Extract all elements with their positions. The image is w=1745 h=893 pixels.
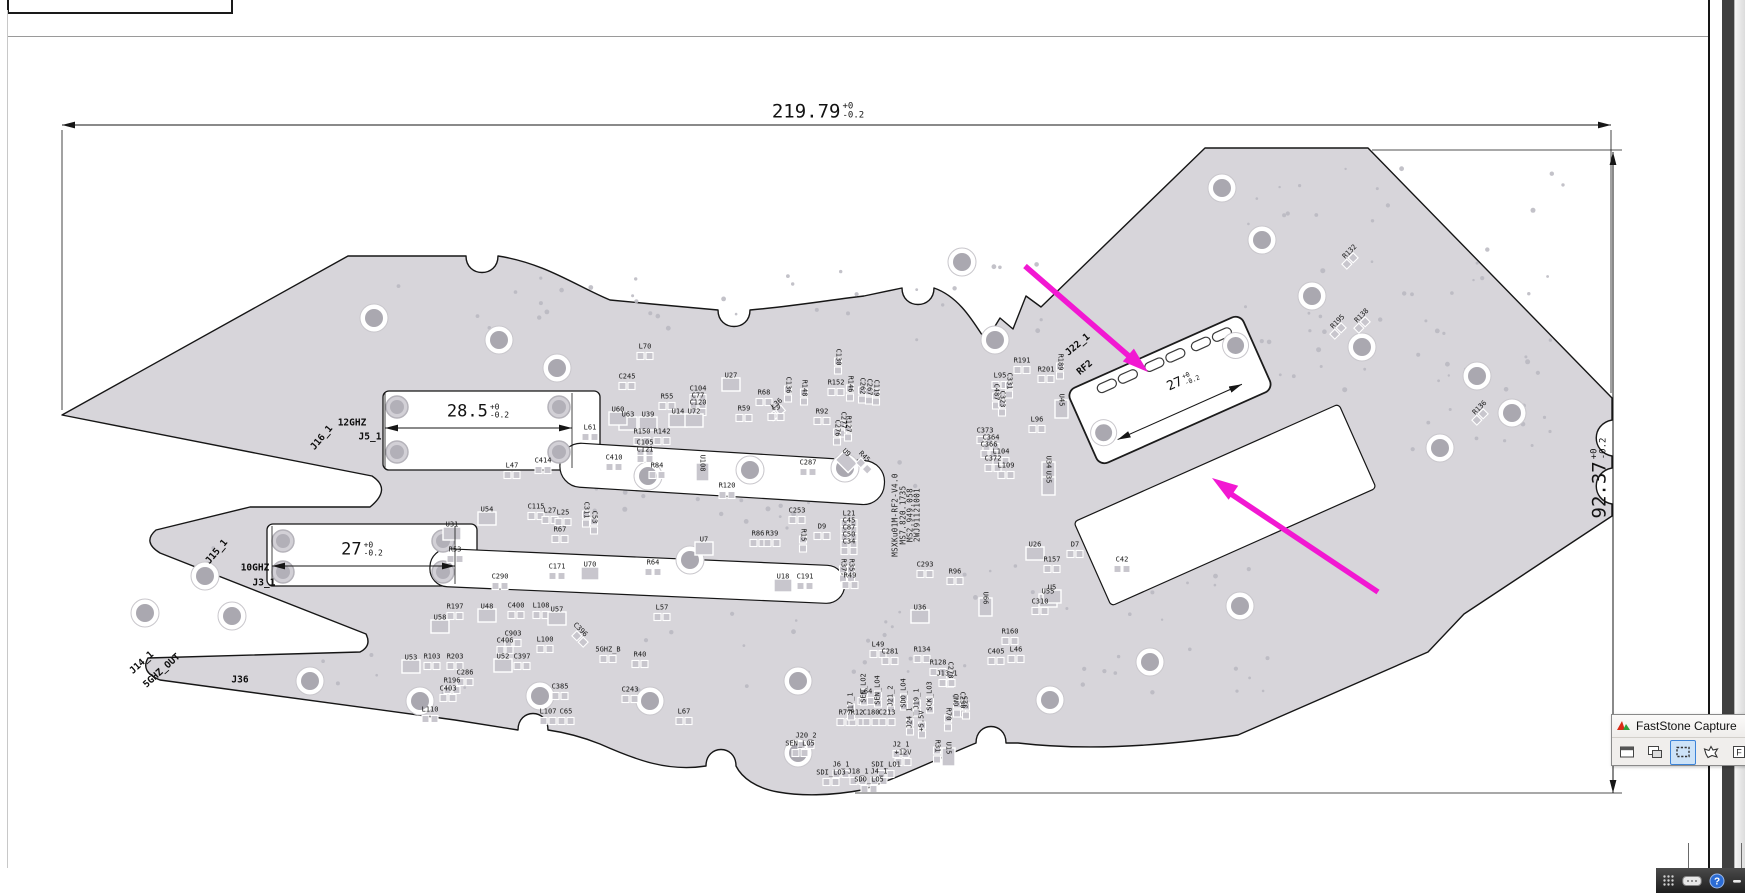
via-dot	[1117, 655, 1120, 658]
via-dot	[735, 313, 738, 316]
via-dot	[1081, 682, 1085, 686]
via-dot	[1248, 677, 1251, 680]
component-label: C406	[497, 638, 514, 645]
dim-value: 27	[341, 542, 361, 559]
faststone-title-bar[interactable]: FastStone Capture	[1612, 715, 1745, 738]
slot-hole-bore	[276, 534, 290, 548]
component-label: R201	[1038, 367, 1055, 374]
via-dot	[1262, 690, 1265, 693]
component-label: R120	[719, 483, 736, 490]
via-dot	[989, 570, 992, 573]
component-label: U58	[434, 615, 447, 622]
via-dot	[952, 286, 956, 290]
component-label: C397	[514, 654, 531, 661]
via-dot	[973, 595, 978, 600]
capture-window-button[interactable]	[1614, 740, 1640, 765]
component-label: R203	[447, 654, 464, 661]
component-label: L107	[540, 709, 557, 716]
dimension-board-height: 92.37 +0-0.2	[1591, 438, 1610, 519]
component-label: U57	[551, 607, 564, 614]
via-dot	[1344, 168, 1346, 170]
component-label: R31	[934, 740, 941, 753]
via-dot	[1150, 690, 1154, 694]
via-dot	[1402, 291, 1406, 295]
via-dot	[998, 266, 1002, 270]
component-label: C191	[797, 574, 814, 581]
via-dot	[1114, 671, 1118, 675]
capture-fullscreen-icon: F	[1731, 745, 1745, 759]
via-dot	[669, 630, 673, 634]
dim-tol-dn: -0.2	[842, 112, 864, 121]
component-label: L46	[1010, 647, 1023, 654]
via-dot	[907, 670, 910, 673]
via-dot	[766, 506, 771, 511]
component-label: SDO_LO5	[854, 777, 884, 784]
via-dot	[791, 629, 796, 634]
component-label: C310	[1032, 599, 1049, 606]
component-pads	[695, 542, 713, 555]
mounting-hole-bore	[223, 607, 241, 625]
component-pads	[443, 527, 461, 540]
via-dot	[1235, 690, 1238, 693]
via-dot	[1561, 183, 1564, 186]
component-label: C120	[690, 400, 707, 407]
component-label: U66	[982, 592, 989, 605]
component-label: L25	[557, 510, 570, 517]
component-label: GND	[954, 694, 961, 707]
component-label: R55	[661, 394, 674, 401]
via-dot	[545, 310, 550, 315]
component-label: C121	[637, 447, 654, 454]
via-dot	[941, 303, 944, 306]
component-label: R68	[758, 390, 771, 397]
via-dot	[743, 644, 746, 647]
via-dot	[897, 460, 902, 465]
component-label: U15	[945, 742, 952, 755]
component-label: J13_1	[936, 671, 957, 678]
slot-hole-bore	[436, 565, 450, 579]
component-label: R35	[848, 559, 855, 572]
capture-freehand-button[interactable]	[1698, 740, 1724, 765]
capture-fullscreen-button[interactable]: F	[1726, 740, 1745, 765]
via-dot	[1449, 408, 1452, 411]
component-label: U52	[497, 654, 510, 661]
via-dot	[1214, 584, 1217, 587]
via-dot	[514, 290, 518, 294]
mounting-hole-bore	[641, 692, 659, 710]
component-label: R197	[447, 604, 464, 611]
via-dot	[1550, 172, 1554, 176]
dim-tol-dn: -0.2	[490, 412, 509, 420]
component-label: SDI_LO3	[816, 770, 846, 777]
slot-hole-bore	[390, 445, 404, 459]
component-label: C281	[882, 649, 899, 656]
via-dot	[1472, 279, 1474, 281]
component-label: U72	[688, 409, 701, 416]
via-dot	[463, 686, 466, 689]
via-dot	[1386, 203, 1390, 207]
via-dot	[1445, 362, 1450, 367]
capture-window-icon	[1619, 745, 1635, 759]
via-dot	[1503, 439, 1506, 442]
minimize-icon[interactable]	[1732, 876, 1742, 886]
via-dot	[1308, 329, 1311, 332]
app-grid-icon[interactable]	[1662, 874, 1675, 887]
via-dot	[1531, 444, 1534, 447]
via-dot	[846, 311, 850, 315]
via-dot	[1410, 292, 1414, 296]
via-dot	[1378, 317, 1382, 321]
via-dot	[992, 264, 997, 269]
via-dot	[1531, 208, 1536, 213]
component-label: L109	[998, 463, 1015, 470]
component-label: C414	[535, 458, 552, 465]
component-label: U35	[1045, 471, 1052, 484]
component-label: R152	[828, 380, 845, 387]
via-dot	[1448, 374, 1450, 376]
component-label: J19_1	[914, 688, 921, 709]
via-dot	[1480, 276, 1484, 280]
via-dot	[1485, 247, 1489, 251]
via-dot	[1342, 387, 1347, 392]
mounting-hole-bore	[1303, 287, 1321, 305]
component-label: C286	[457, 670, 474, 677]
via-dot	[795, 619, 798, 622]
component-label: J2_1	[893, 742, 910, 749]
component-label: C262	[859, 378, 866, 395]
via-dot	[1014, 564, 1018, 568]
component-label: C180	[863, 710, 880, 717]
dim-tol-dn: -0.2	[364, 550, 383, 558]
component-label: R128	[930, 660, 947, 667]
component-label: U5	[1048, 585, 1056, 592]
component-label: 5GHZ_B	[595, 647, 620, 654]
component-label: C400	[508, 603, 525, 610]
component-label: U26	[1029, 542, 1042, 549]
via-dot	[909, 657, 913, 661]
via-dot	[1308, 312, 1311, 315]
component-label: L27	[544, 508, 557, 515]
via-dot	[1536, 371, 1540, 375]
via-dot	[1363, 368, 1366, 371]
mounting-hole-bore	[531, 687, 549, 705]
via-dot	[1286, 211, 1290, 215]
svg-text:F: F	[1736, 748, 1742, 758]
via-dot	[730, 612, 734, 616]
component-label: C403	[440, 686, 457, 693]
component-label: J4_1	[871, 769, 888, 776]
via-dot	[1298, 184, 1301, 187]
component-label: SEN_LO2	[861, 673, 868, 703]
via-dot	[786, 274, 790, 278]
mounting-hole-bore	[1431, 439, 1449, 457]
component-label: C253	[789, 508, 806, 515]
component-label: C267	[866, 379, 873, 396]
component-label: C213	[879, 710, 896, 717]
component-label: SDO_LO4	[901, 678, 908, 708]
dimension-slot-top: 28.5 +0-0.2	[447, 404, 509, 421]
slot-hole-bore	[552, 400, 566, 414]
via-dot	[744, 519, 749, 524]
component-label: U108	[699, 455, 706, 472]
via-dot	[1320, 365, 1323, 368]
component-label: C385	[552, 684, 569, 691]
component-label: R39	[766, 531, 779, 538]
via-dot	[839, 270, 842, 273]
taskbar-fragment[interactable]: ?	[1656, 868, 1745, 893]
component-pads	[685, 414, 703, 427]
mounting-hole-bore	[1041, 691, 1059, 709]
component-label: J17_1	[848, 692, 855, 713]
component-label: L67	[678, 709, 691, 716]
component-pads	[402, 660, 420, 673]
via-dot	[1527, 292, 1530, 295]
port-label: J36	[231, 675, 248, 685]
port-label: J5_1	[359, 432, 382, 442]
via-dot	[1546, 275, 1549, 278]
via-dot	[1278, 186, 1280, 188]
component-label: U36	[914, 605, 927, 612]
component-label: R148	[801, 380, 808, 397]
slot-hole-bore	[390, 400, 404, 414]
capture-object-button[interactable]	[1642, 740, 1668, 765]
via-dot	[696, 497, 700, 501]
component-label: C243	[622, 687, 639, 694]
via-dot	[539, 301, 543, 305]
via-dot	[1161, 619, 1163, 621]
component-label: R96	[949, 569, 962, 576]
mounting-hole-bore	[1141, 653, 1159, 671]
via-dot	[1082, 667, 1086, 671]
component-label: U14	[672, 409, 685, 416]
component-label: C410	[606, 455, 623, 462]
component-pads	[669, 414, 687, 427]
component-label: R134	[914, 647, 931, 654]
via-dot	[891, 625, 894, 628]
component-pads	[1026, 547, 1044, 560]
pcb-drawing	[0, 0, 1745, 893]
via-dot	[1034, 262, 1039, 267]
via-dot	[1314, 213, 1318, 217]
via-dot	[963, 573, 967, 577]
component-label: U27	[725, 373, 738, 380]
component-label: J25	[963, 696, 970, 709]
via-dot	[1504, 387, 1509, 392]
via-dot	[1322, 329, 1327, 334]
component-label: R70	[945, 708, 952, 721]
component-label: R15	[800, 529, 807, 542]
port-label: J3_1	[253, 578, 276, 588]
component-label: L70	[639, 344, 652, 351]
via-dot	[476, 314, 480, 318]
component-label: L100	[537, 637, 554, 644]
component-label: U31	[446, 522, 459, 529]
via-dot	[791, 282, 794, 285]
dimension-slot-bottom: 27 +0-0.2	[341, 542, 383, 559]
via-dot	[1320, 268, 1325, 273]
via-dot	[1186, 582, 1189, 585]
via-dot	[321, 659, 325, 663]
component-label: J18_1	[847, 769, 868, 776]
component-label: U48	[481, 604, 494, 611]
component-pads	[494, 659, 512, 672]
via-dot	[915, 288, 918, 291]
component-label: C287	[800, 460, 817, 467]
component-label: R160	[1002, 629, 1019, 636]
faststone-title: FastStone Capture	[1636, 719, 1737, 733]
capture-freehand-icon	[1703, 745, 1719, 759]
via-dot	[648, 311, 652, 315]
via-dot	[666, 326, 671, 331]
component-pads	[722, 378, 740, 391]
component-label: L110	[422, 707, 439, 714]
component-label: R196	[444, 678, 461, 685]
via-dot	[634, 277, 637, 280]
component-label: R84	[651, 463, 664, 470]
component-label: R64	[647, 560, 660, 567]
via-dot	[1244, 305, 1247, 308]
component-label: U70	[584, 562, 597, 569]
mounting-hole-bore	[490, 331, 508, 349]
help-icon[interactable]: ?	[1709, 873, 1725, 889]
mounting-hole-bore	[1213, 179, 1231, 197]
mounting-hole-bore	[1353, 338, 1371, 356]
via-dot	[898, 611, 901, 614]
component-pads	[581, 567, 599, 580]
via-dot	[1247, 567, 1251, 571]
dim-value: 219.79	[772, 103, 841, 122]
via-dot	[739, 499, 743, 503]
component-label: R191	[1014, 358, 1031, 365]
via-dot	[1279, 373, 1282, 376]
component-label: L108	[533, 603, 550, 610]
component-label: J24_1	[907, 707, 914, 728]
component-label: L57	[656, 605, 669, 612]
component-label: D9	[818, 524, 826, 531]
svg-text:?: ?	[1714, 876, 1720, 887]
component-label: R37	[840, 559, 847, 572]
faststone-capture-panel[interactable]: FastStone Capture F	[1611, 714, 1745, 766]
via-dot	[656, 314, 661, 319]
component-label: U7	[700, 537, 708, 544]
component-label: R189	[1057, 354, 1064, 371]
via-dot	[883, 633, 887, 637]
via-dot	[1213, 574, 1218, 579]
via-dot	[631, 294, 634, 297]
component-label: J20_2	[795, 733, 816, 740]
component-label: C290	[492, 574, 509, 581]
keyboard-icon[interactable]	[1682, 875, 1702, 887]
component-label: U54	[481, 507, 494, 514]
component-label: L96	[1031, 417, 1044, 424]
component-label: R49	[844, 573, 857, 580]
via-dot	[884, 620, 887, 623]
via-dot	[1411, 447, 1415, 451]
via-dot	[1476, 262, 1479, 265]
via-dot	[1266, 656, 1270, 660]
via-dot	[1371, 219, 1374, 222]
via-dot	[336, 681, 340, 685]
component-label: R146	[847, 376, 854, 393]
component-label: SEN_LO5	[785, 741, 815, 748]
via-dot	[815, 308, 819, 312]
component-label: C311	[583, 502, 590, 519]
via-dot	[1416, 353, 1420, 357]
via-dot	[1065, 607, 1068, 610]
mounting-hole-bore	[1503, 404, 1521, 422]
via-dot	[1426, 421, 1430, 425]
component-label: R67	[554, 527, 567, 534]
faststone-logo-icon	[1617, 719, 1631, 734]
via-dot	[1442, 332, 1445, 335]
component-label: C331	[1006, 373, 1013, 390]
component-label: L47	[506, 463, 519, 470]
via-dot	[1543, 416, 1546, 419]
capture-rectangle-button[interactable]	[1670, 740, 1696, 765]
screenshot-stage: 219.79 +0-0.2 92.37 +0-0.2 28.5 +0-0.2 2…	[0, 0, 1745, 893]
component-label: U18	[777, 574, 790, 581]
component-label: D7	[1071, 542, 1079, 549]
via-dot	[1128, 612, 1132, 616]
via-dot	[634, 299, 638, 303]
mounting-hole-bore	[986, 331, 1004, 349]
component-label: SEN_LO4	[875, 675, 882, 705]
via-dot	[622, 507, 627, 512]
component-label: R59	[738, 406, 751, 413]
component-label: U60	[612, 407, 625, 414]
via-dot	[1549, 338, 1552, 341]
via-dot	[721, 297, 726, 302]
faststone-toolbar: F	[1612, 738, 1745, 766]
mounting-hole-bore	[1231, 597, 1249, 615]
component-label: J21_2	[888, 685, 895, 706]
component-label: U39	[642, 412, 655, 419]
component-label: C405	[988, 649, 1005, 656]
via-dot	[1475, 437, 1479, 441]
component-label: C115	[528, 504, 545, 511]
component-label: L95	[994, 373, 1007, 380]
via-dot	[1435, 329, 1440, 334]
component-pads	[478, 609, 496, 622]
mounting-hole-bore	[301, 672, 319, 690]
mounting-hole-bore	[789, 672, 807, 690]
component-label: C276	[834, 420, 841, 437]
via-dot	[1040, 318, 1043, 321]
via-dot	[1292, 374, 1296, 378]
via-dot	[641, 494, 645, 498]
via-dot	[1525, 359, 1530, 364]
via-dot	[1548, 430, 1551, 433]
via-dot	[539, 277, 542, 280]
capture-rectangle-icon	[1675, 745, 1691, 759]
mounting-hole-bore	[953, 253, 971, 271]
component-label: U53	[405, 655, 418, 662]
via-dot	[1150, 590, 1154, 594]
via-dot	[537, 315, 541, 319]
via-dot	[779, 515, 782, 518]
via-dot	[1450, 291, 1454, 295]
component-label: R127	[845, 416, 852, 433]
via-dot	[852, 670, 856, 674]
mounting-hole-bore	[548, 359, 566, 377]
via-dot	[397, 284, 401, 288]
component-label: L9	[772, 405, 780, 412]
component-label: R92	[816, 409, 829, 416]
component-label: U34	[1045, 456, 1052, 469]
via-dot	[719, 512, 723, 516]
slot-hole-bore	[276, 565, 290, 579]
via-dot	[1282, 213, 1286, 217]
